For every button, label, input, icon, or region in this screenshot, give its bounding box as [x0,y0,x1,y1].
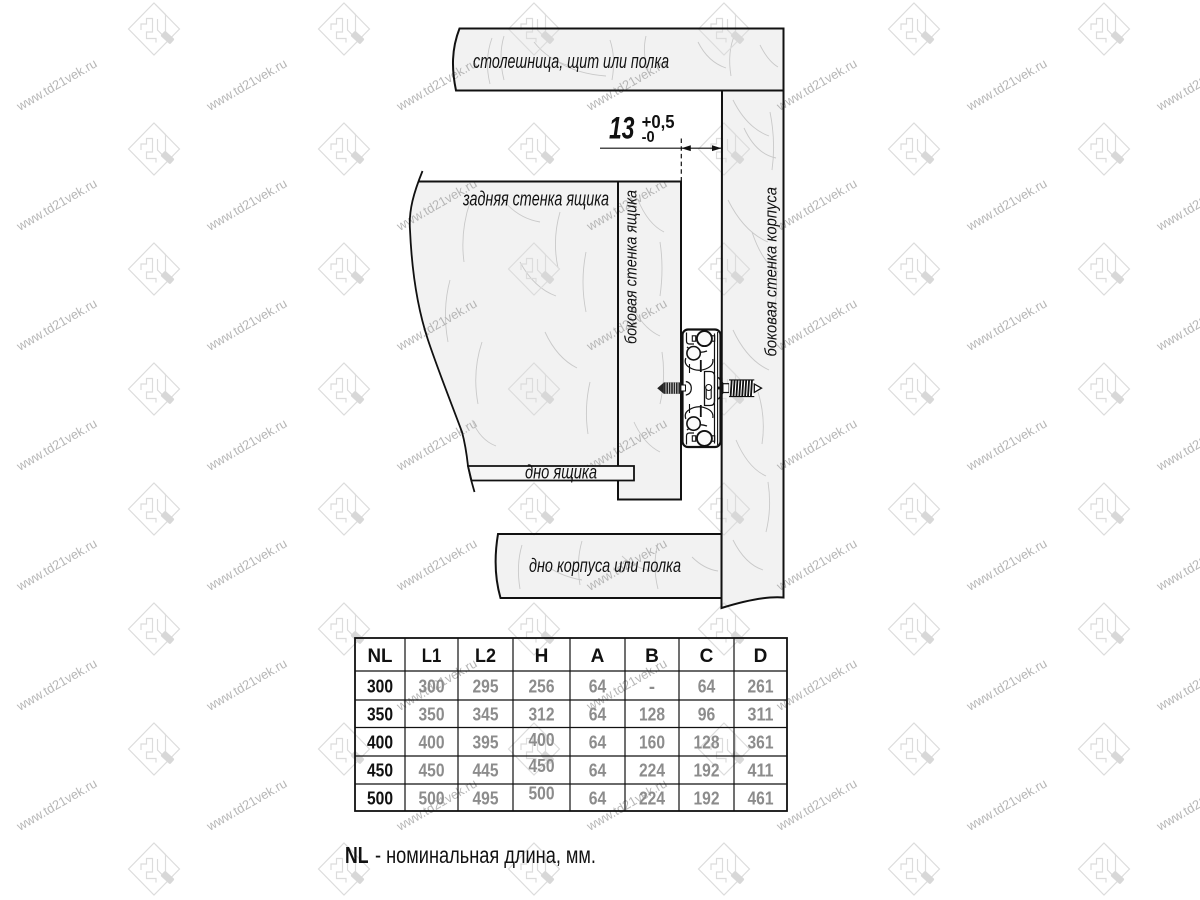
svg-text:96: 96 [698,703,716,724]
svg-text:450: 450 [529,755,555,776]
svg-text:495: 495 [473,788,499,809]
svg-text:D: D [754,646,768,667]
svg-text:192: 192 [694,760,720,781]
svg-text:L1: L1 [422,646,442,667]
svg-text:350: 350 [367,703,393,724]
svg-text:300: 300 [367,675,393,696]
svg-text:боковая стенка корпуса: боковая стенка корпуса [762,187,781,357]
svg-text:361: 361 [748,731,774,752]
svg-text:345: 345 [473,703,499,724]
svg-text:дно ящика: дно ящика [525,463,597,484]
svg-text:B: B [645,646,659,667]
svg-text:160: 160 [639,731,665,752]
svg-text:задняя стенка ящика: задняя стенка ящика [462,189,609,211]
svg-text:-0: -0 [642,129,655,146]
svg-text:NL: NL [368,646,393,667]
svg-text:411: 411 [748,760,774,781]
svg-text:192: 192 [694,788,720,809]
svg-text:64: 64 [589,731,607,752]
svg-text:64: 64 [698,675,716,696]
svg-text:500: 500 [419,788,445,809]
svg-text:L2: L2 [475,646,496,667]
svg-text:C: C [700,646,714,667]
svg-text:450: 450 [367,760,393,781]
svg-text:64: 64 [589,788,607,809]
svg-text:312: 312 [529,703,555,724]
svg-text:395: 395 [473,731,499,752]
svg-text:400: 400 [367,731,393,752]
svg-text:300: 300 [419,675,445,696]
svg-text:дно корпуса или полка: дно корпуса или полка [529,555,681,577]
svg-text:311: 311 [748,703,774,724]
svg-text:400: 400 [529,729,555,750]
svg-text:350: 350 [419,703,445,724]
svg-text:боковая стенка ящика: боковая стенка ящика [622,190,641,344]
svg-text:450: 450 [419,760,445,781]
svg-text:64: 64 [589,760,607,781]
svg-text:столешница, щит или полка: столешница, щит или полка [473,50,669,73]
svg-text:128: 128 [694,731,720,752]
svg-text:224: 224 [639,788,666,809]
svg-text:445: 445 [473,760,499,781]
svg-text:64: 64 [589,703,607,724]
svg-text:128: 128 [639,703,665,724]
svg-text:-: - [649,675,655,696]
svg-text:64: 64 [589,675,607,696]
svg-text:500: 500 [367,788,393,809]
svg-text:256: 256 [529,675,555,696]
svg-text:NL: NL [345,842,369,868]
svg-text:261: 261 [748,675,774,696]
svg-text:- номинальная длина, мм.: - номинальная длина, мм. [375,842,596,868]
svg-text:400: 400 [419,731,445,752]
svg-text:A: A [591,646,605,667]
svg-text:H: H [535,646,549,667]
svg-text:224: 224 [639,760,666,781]
svg-text:461: 461 [748,788,774,809]
svg-text:500: 500 [529,783,555,804]
svg-text:13: 13 [609,110,635,146]
svg-text:295: 295 [473,675,499,696]
